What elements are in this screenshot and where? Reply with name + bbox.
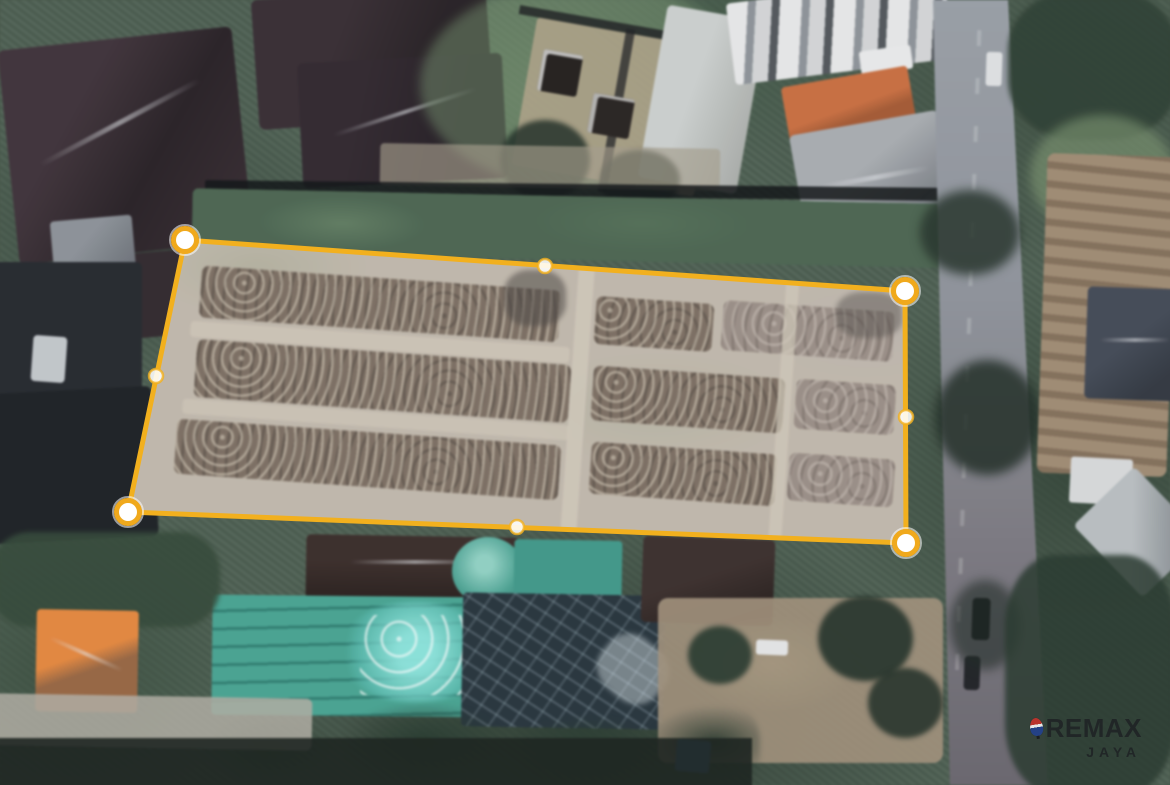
plot-midpoint-handle[interactable]	[149, 369, 163, 383]
plot-boundary-polygon[interactable]	[128, 240, 906, 543]
plot-corner-handle[interactable]	[117, 501, 140, 524]
watermark-subtitle-text: JAYA	[1030, 745, 1142, 759]
plot-corner-handle[interactable]	[894, 280, 917, 303]
plot-overlay-svg	[0, 0, 1170, 785]
remax-balloon-icon	[1028, 717, 1044, 737]
plot-midpoint-handle[interactable]	[510, 520, 524, 534]
watermark-brand-text: REMAX	[1046, 715, 1142, 741]
plot-midpoint-handle[interactable]	[538, 259, 552, 273]
plot-corner-handle[interactable]	[895, 532, 918, 555]
remax-watermark: REMAX JAYA	[1030, 715, 1142, 759]
satellite-land-view: REMAX JAYA	[0, 0, 1170, 785]
plot-corner-handle[interactable]	[174, 229, 197, 252]
plot-midpoint-handle[interactable]	[899, 410, 913, 424]
